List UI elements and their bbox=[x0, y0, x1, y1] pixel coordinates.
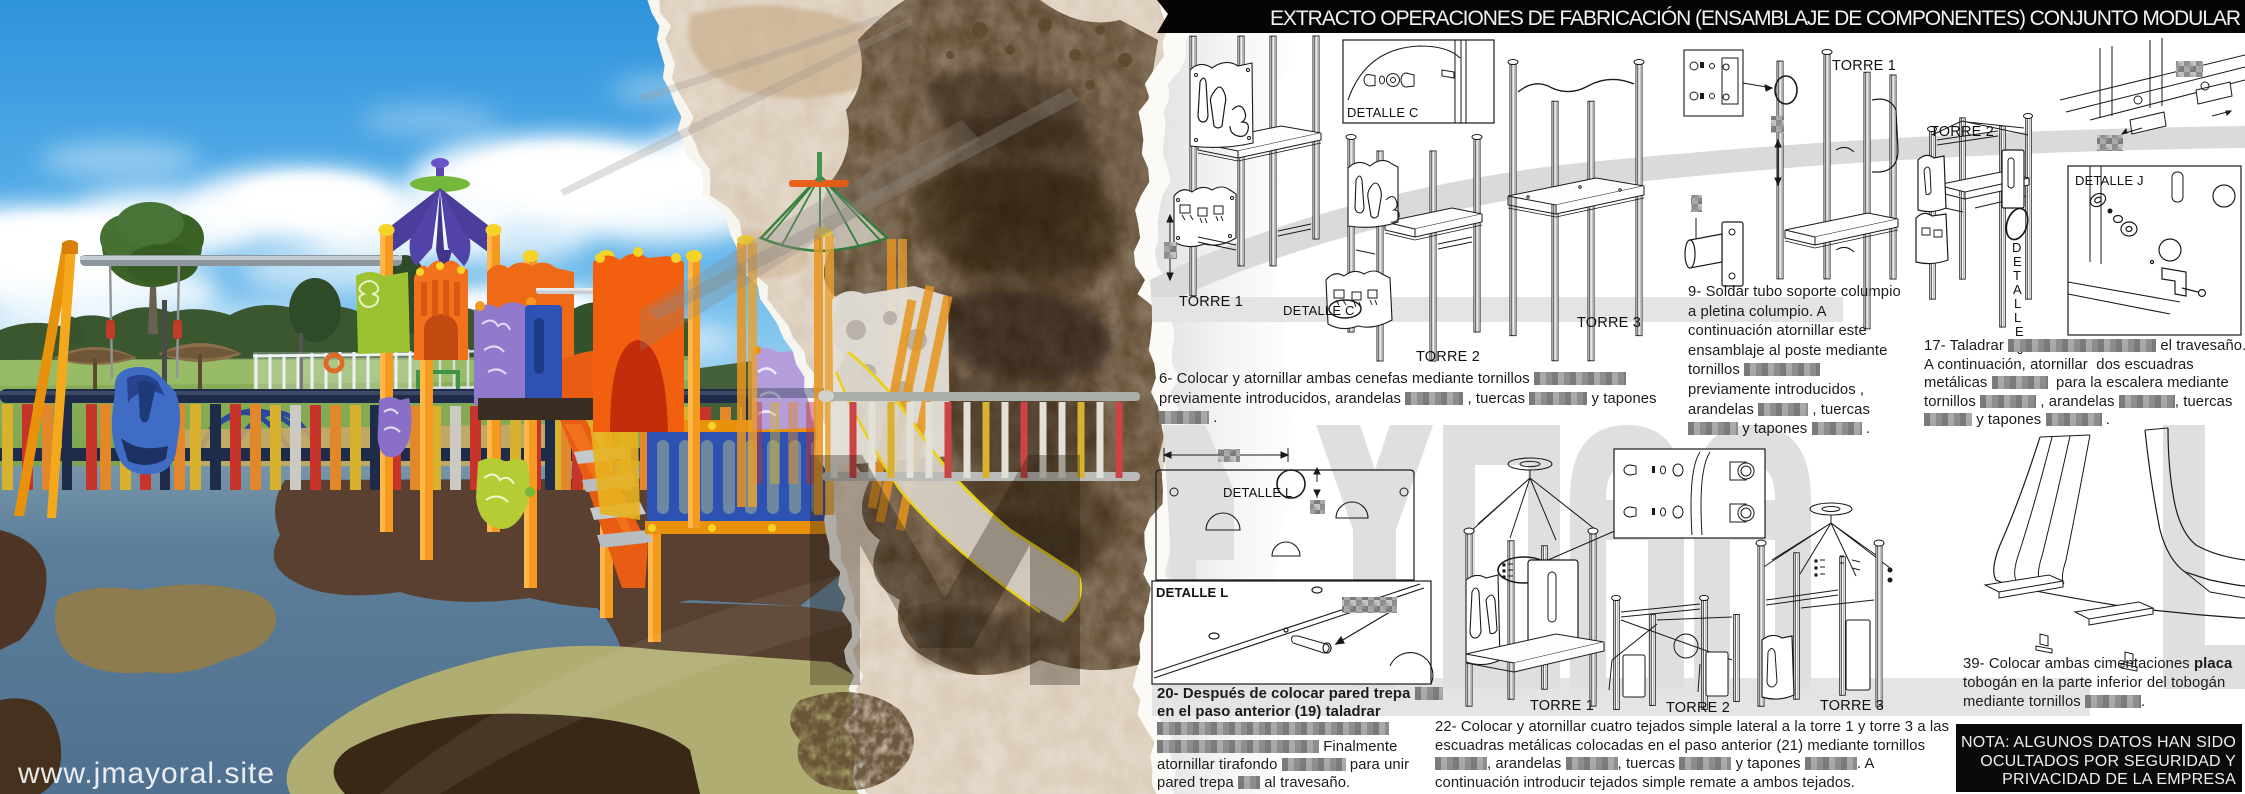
svg-text:EXTRACTO OPERACIONES DE FABRIC: EXTRACTO OPERACIONES DE FABRICACIÓN (ENS… bbox=[1270, 7, 2241, 30]
svg-text:DETALLE J: DETALLE J bbox=[2075, 173, 2144, 188]
svg-text:TORRE 1: TORRE 1 bbox=[1530, 698, 1594, 714]
svg-text:TORRE 1: TORRE 1 bbox=[1832, 58, 1896, 74]
svg-text:DETALLE C: DETALLE C bbox=[1283, 303, 1355, 318]
svg-text:DETALLE L: DETALLE L bbox=[1156, 585, 1228, 600]
svg-text:D: D bbox=[2012, 240, 2022, 255]
svg-text:DETALLE L: DETALLE L bbox=[1223, 485, 1292, 500]
svg-text:TORRE 3: TORRE 3 bbox=[1820, 698, 1884, 714]
svg-text:E: E bbox=[2013, 254, 2022, 269]
svg-text:OCULTADOS POR SEGURIDAD Y: OCULTADOS POR SEGURIDAD Y bbox=[1980, 753, 2236, 770]
svg-text:TORRE 3: TORRE 3 bbox=[1577, 315, 1641, 331]
svg-text:TORRE 2: TORRE 2 bbox=[1416, 349, 1480, 365]
svg-text:NOTA: ALGUNOS DATOS HAN SIDO: NOTA: ALGUNOS DATOS HAN SIDO bbox=[1961, 734, 2236, 751]
svg-text:PRIVACIDAD DE LA EMPRESA: PRIVACIDAD DE LA EMPRESA bbox=[2002, 771, 2236, 788]
svg-text:A: A bbox=[2013, 282, 2022, 297]
svg-text:www.jmayoral.site: www.jmayoral.site bbox=[17, 757, 275, 790]
svg-text:T: T bbox=[2013, 268, 2021, 283]
svg-text:L: L bbox=[2014, 296, 2021, 311]
svg-text:L: L bbox=[2014, 310, 2021, 325]
svg-text:TORRE 2: TORRE 2 bbox=[1930, 124, 1994, 140]
svg-text:DETALLE C: DETALLE C bbox=[1347, 105, 1419, 120]
svg-text:TORRE 2: TORRE 2 bbox=[1666, 700, 1730, 716]
svg-text:TORRE 1: TORRE 1 bbox=[1179, 294, 1243, 310]
